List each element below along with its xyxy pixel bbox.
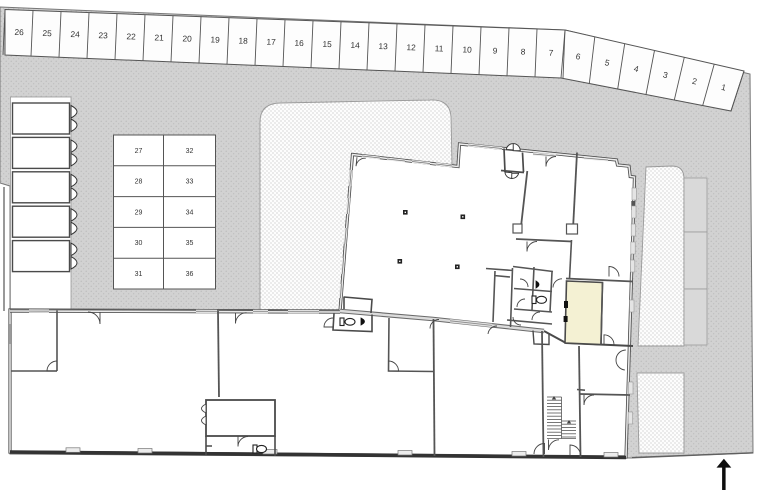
svg-text:18: 18	[238, 36, 248, 46]
svg-text:32: 32	[186, 148, 194, 155]
svg-text:14: 14	[350, 40, 360, 50]
svg-text:24: 24	[70, 29, 80, 39]
svg-text:16: 16	[294, 38, 304, 48]
svg-text:22: 22	[126, 31, 136, 41]
svg-text:10: 10	[462, 44, 472, 54]
svg-text:23: 23	[98, 30, 108, 40]
svg-text:19: 19	[210, 34, 220, 44]
svg-text:28: 28	[135, 179, 143, 186]
svg-text:7: 7	[549, 48, 554, 58]
svg-text:17: 17	[266, 37, 276, 47]
svg-text:26: 26	[14, 27, 24, 37]
svg-text:36: 36	[186, 271, 194, 278]
svg-text:34: 34	[186, 209, 194, 216]
svg-text:31: 31	[135, 271, 143, 278]
svg-text:27: 27	[135, 148, 143, 155]
svg-text:35: 35	[186, 240, 194, 247]
svg-text:29: 29	[135, 209, 143, 216]
svg-text:8: 8	[521, 47, 526, 57]
svg-text:9: 9	[493, 46, 498, 56]
svg-text:33: 33	[186, 179, 194, 186]
svg-text:20: 20	[182, 33, 192, 43]
svg-text:13: 13	[378, 41, 388, 51]
svg-text:25: 25	[42, 28, 52, 38]
svg-text:30: 30	[135, 240, 143, 247]
svg-text:12: 12	[406, 42, 416, 52]
svg-text:15: 15	[322, 39, 332, 49]
svg-text:11: 11	[435, 43, 444, 53]
svg-text:21: 21	[154, 32, 164, 42]
